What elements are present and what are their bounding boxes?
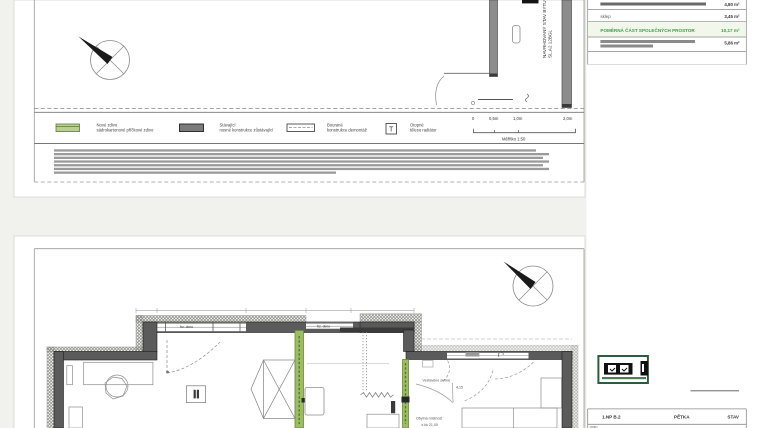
- svg-text:STAV: STAV: [727, 415, 740, 420]
- svg-text:1.NP B.2: 1.NP B.2: [602, 415, 621, 420]
- svg-text:Měřítko 1:50: Měřítko 1:50: [502, 137, 526, 142]
- svg-text:PĚTKA: PĚTKA: [674, 413, 690, 420]
- svg-text:SL.A2 12BGL: SL.A2 12BGL: [548, 29, 553, 58]
- svg-text:10,17 m²: 10,17 m²: [721, 28, 740, 33]
- svg-text:3,45 m²: 3,45 m²: [724, 14, 740, 19]
- svg-text:konstrukce demontáž: konstrukce demontáž: [327, 128, 367, 133]
- svg-text:T: T: [389, 127, 394, 134]
- svg-text:s kk 21,05: s kk 21,05: [422, 423, 438, 427]
- svg-text:nosné konstrukce zůstávající: nosné konstrukce zůstávající: [220, 128, 275, 133]
- svg-text:5,86 m²: 5,86 m²: [724, 41, 740, 46]
- svg-text:těleso radiátor: těleso radiátor: [410, 128, 437, 133]
- svg-text:sádrokartonové příčkové zdivo: sádrokartonové příčkové zdivo: [97, 128, 154, 133]
- svg-text:Vestavěné skříně: Vestavěné skříně: [423, 379, 451, 383]
- svg-text:2,0m: 2,0m: [563, 116, 573, 121]
- svg-text:4,15: 4,15: [456, 386, 463, 390]
- svg-text:4,80 m²: 4,80 m²: [724, 2, 740, 7]
- svg-text:sklep: sklep: [600, 14, 611, 19]
- svg-text:NAVRHOVANÝ STAV BYTU: NAVRHOVANÝ STAV BYTU: [541, 0, 547, 58]
- svg-text:frz. okno: frz. okno: [180, 325, 193, 329]
- svg-text:1,0m: 1,0m: [513, 116, 523, 121]
- svg-text:0,5m: 0,5m: [489, 116, 499, 121]
- svg-text:POMĚRNÁ ČÁST SPOLEČNÝCH PROSTO: POMĚRNÁ ČÁST SPOLEČNÝCH PROSTOR: [600, 26, 695, 33]
- svg-text:frz. okno: frz. okno: [317, 325, 330, 329]
- svg-text:Obytná místnost: Obytná místnost: [416, 417, 442, 421]
